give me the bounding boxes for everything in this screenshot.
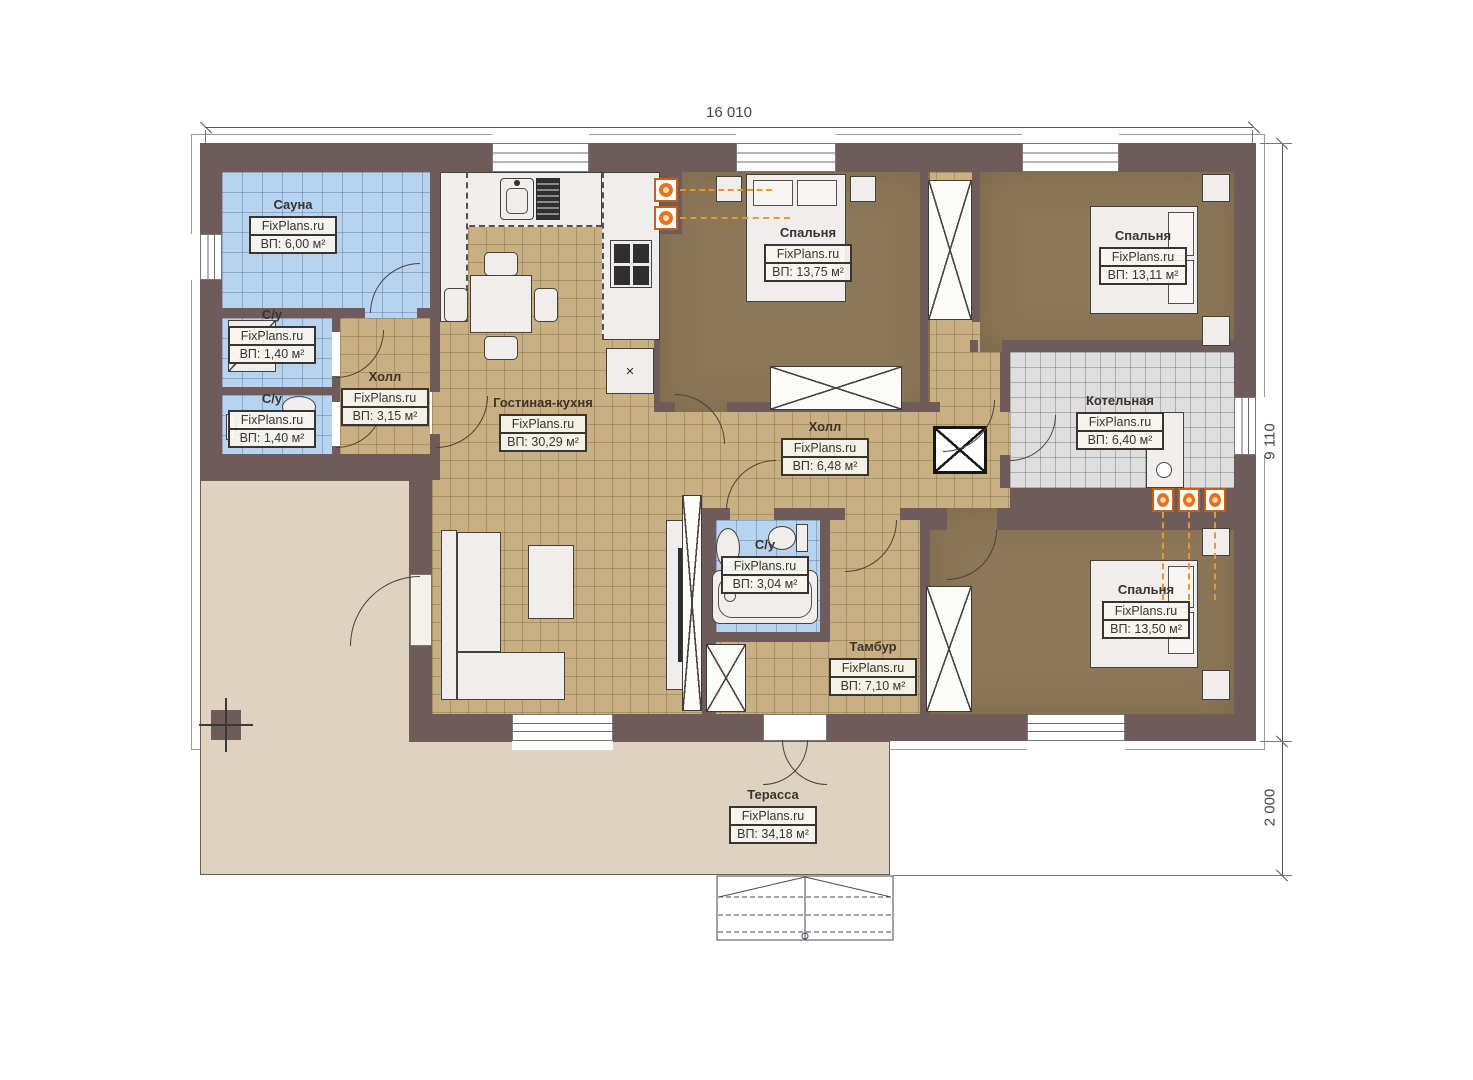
room-name: Холл xyxy=(369,370,402,385)
wall xyxy=(1002,340,1234,352)
heating-pipe xyxy=(1214,512,1216,600)
room-area: ВП: 13,50 м² xyxy=(1102,619,1190,639)
wardrobe xyxy=(682,495,702,711)
room-label-living-kitchen: Гостиная-кухня FixPlans.ru ВП: 30,29 м² xyxy=(478,396,608,452)
extension-line xyxy=(1252,130,1253,143)
wardrobe xyxy=(926,586,972,712)
watermark: FixPlans.ru xyxy=(249,216,337,236)
room-label-terrace: Терасса FixPlans.ru ВП: 34,18 м² xyxy=(718,788,828,844)
sofa-seat xyxy=(457,652,565,700)
wall xyxy=(900,508,920,520)
chair xyxy=(484,252,518,276)
dining-table xyxy=(470,275,532,333)
pillow xyxy=(753,180,793,206)
terrace-seam-patch xyxy=(406,742,434,874)
wall xyxy=(970,340,978,352)
window-sill xyxy=(736,134,836,143)
room-label-boiler: Котельная FixPlans.ru ВП: 6,40 м² xyxy=(1066,394,1174,450)
window xyxy=(1234,397,1256,455)
room-name: Холл xyxy=(809,420,842,435)
window-sill xyxy=(512,741,613,750)
room-area: ВП: 1,40 м² xyxy=(228,344,316,364)
watermark: FixPlans.ru xyxy=(228,326,316,346)
stove xyxy=(610,240,652,288)
room-area: ВП: 6,40 м² xyxy=(1076,430,1164,450)
room-name: Гостиная-кухня xyxy=(493,396,593,411)
window-sill xyxy=(1027,741,1125,750)
wall xyxy=(702,632,830,642)
chair xyxy=(444,288,468,322)
room-area: ВП: 13,11 м² xyxy=(1099,265,1187,285)
radiator-icon xyxy=(1204,488,1226,512)
room-name: Спальня xyxy=(780,226,836,241)
room-name: Терасса xyxy=(747,788,799,803)
wall xyxy=(1010,488,1234,508)
window xyxy=(200,234,222,280)
wall xyxy=(654,402,675,412)
watermark: FixPlans.ru xyxy=(721,556,809,576)
wall xyxy=(972,172,980,322)
room-name: С/у xyxy=(755,538,775,553)
room-area: ВП: 6,00 м² xyxy=(249,234,337,254)
room-area: ВП: 3,04 м² xyxy=(721,574,809,594)
room-label-bedroom-3: Спальня FixPlans.ru ВП: 13,50 м² xyxy=(1091,583,1201,639)
room-area: ВП: 1,40 м² xyxy=(228,428,316,448)
extension-line xyxy=(205,130,206,143)
window-sill xyxy=(191,234,200,280)
wall xyxy=(200,143,222,480)
room-area: ВП: 7,10 м² xyxy=(829,676,917,696)
room-area: ВП: 6,48 м² xyxy=(781,456,869,476)
stove-burner-icon xyxy=(633,266,649,285)
extension-line xyxy=(1260,143,1292,144)
watermark: FixPlans.ru xyxy=(1076,412,1164,432)
extension-line xyxy=(1260,741,1292,742)
nightstand xyxy=(1202,174,1230,202)
heating-pipe xyxy=(680,217,790,219)
wall xyxy=(920,172,928,402)
terrace-area xyxy=(200,480,410,875)
wardrobe xyxy=(770,366,902,410)
coffee-table xyxy=(528,545,574,619)
wall xyxy=(430,172,440,392)
stove-burner-icon xyxy=(614,266,630,285)
nightstand xyxy=(1202,528,1230,556)
watermark: FixPlans.ru xyxy=(729,806,817,826)
column-axis-line xyxy=(225,698,227,752)
nightstand xyxy=(1202,670,1230,700)
wardrobe xyxy=(706,644,746,712)
dimension-line xyxy=(1282,741,1283,876)
watermark: FixPlans.ru xyxy=(341,388,429,408)
window xyxy=(1022,143,1119,172)
entrance-steps xyxy=(716,875,894,941)
room-label-sauna: Сауна FixPlans.ru ВП: 6,00 м² xyxy=(237,198,349,254)
dimension-line xyxy=(1282,143,1283,741)
wall xyxy=(774,508,845,520)
room-label-wc-3: С/у FixPlans.ru ВП: 3,04 м² xyxy=(713,538,817,594)
kitchen-appliance: × xyxy=(606,348,654,394)
room-label-wc-1: С/у FixPlans.ru ВП: 1,40 м² xyxy=(220,308,324,364)
watermark: FixPlans.ru xyxy=(829,658,917,678)
room-name: С/у xyxy=(262,392,282,407)
room-name: С/у xyxy=(262,308,282,323)
extension-line xyxy=(893,875,1292,876)
room-name: Спальня xyxy=(1115,229,1171,244)
window xyxy=(1027,714,1125,741)
radiator-icon xyxy=(1178,488,1200,512)
floor-plan-canvas: × xyxy=(0,0,1473,1080)
watermark: FixPlans.ru xyxy=(781,438,869,458)
pillow xyxy=(797,180,837,206)
wall xyxy=(1000,455,1010,488)
wall xyxy=(702,508,730,520)
wall xyxy=(920,508,947,530)
window xyxy=(736,143,836,172)
window xyxy=(492,143,589,172)
nightstand xyxy=(1202,316,1230,346)
tv xyxy=(678,548,682,662)
kitchen-dish-rack xyxy=(536,178,560,220)
room-name: Сауна xyxy=(273,198,312,213)
chair xyxy=(534,288,558,322)
stove-burner-icon xyxy=(614,244,630,263)
dimension-terrace-label: 2 000 xyxy=(1262,758,1279,858)
wall xyxy=(200,454,440,480)
boiler-gauge xyxy=(1156,462,1172,478)
wall xyxy=(410,480,432,574)
window-sill xyxy=(492,134,589,143)
room-area: ВП: 3,15 м² xyxy=(341,406,429,426)
watermark: FixPlans.ru xyxy=(228,410,316,430)
watermark: FixPlans.ru xyxy=(1099,247,1187,267)
watermark: FixPlans.ru xyxy=(764,244,852,264)
room-label-hall-2: Холл FixPlans.ru ВП: 6,48 м² xyxy=(772,420,878,476)
room-label-bedroom-1: Спальня FixPlans.ru ВП: 13,75 м² xyxy=(753,226,863,282)
room-name: Тамбур xyxy=(849,640,896,655)
watermark: FixPlans.ru xyxy=(1102,601,1190,621)
window xyxy=(512,714,613,741)
wardrobe xyxy=(928,180,972,320)
wall xyxy=(410,646,432,714)
radiator-icon xyxy=(654,178,678,202)
room-area: ВП: 13,75 м² xyxy=(764,262,852,282)
room-name: Спальня xyxy=(1118,583,1174,598)
stove-burner-icon xyxy=(633,244,649,263)
dimension-height-label: 9 110 xyxy=(1262,392,1279,492)
wall xyxy=(820,508,830,642)
room-label-vestibule: Тамбур FixPlans.ru ВП: 7,10 м² xyxy=(822,640,924,696)
room-area: ВП: 34,18 м² xyxy=(729,824,817,844)
window-sill xyxy=(1022,134,1119,143)
nightstand xyxy=(850,176,876,202)
radiator-icon xyxy=(1152,488,1174,512)
wall xyxy=(332,318,340,332)
chair xyxy=(484,336,518,360)
wall xyxy=(1000,352,1010,412)
kitchen-sink-bowl xyxy=(506,188,528,214)
heating-pipe xyxy=(680,189,772,191)
watermark: FixPlans.ru xyxy=(499,414,587,434)
radiator-icon xyxy=(654,206,678,230)
kitchen-faucet xyxy=(514,180,520,186)
sofa-back xyxy=(441,530,457,700)
dimension-line xyxy=(205,127,1253,128)
room-label-bedroom-2: Спальня FixPlans.ru ВП: 13,11 м² xyxy=(1088,229,1198,285)
room-area: ВП: 30,29 м² xyxy=(499,432,587,452)
front-door-opening xyxy=(763,714,827,741)
dimension-width-label: 16 010 xyxy=(205,104,1253,121)
sofa-seat xyxy=(457,532,501,652)
room-label-hall-1: Холл FixPlans.ru ВП: 3,15 м² xyxy=(337,370,433,426)
room-label-wc-2: С/у FixPlans.ru ВП: 1,40 м² xyxy=(222,392,322,448)
room-name: Котельная xyxy=(1086,394,1154,409)
